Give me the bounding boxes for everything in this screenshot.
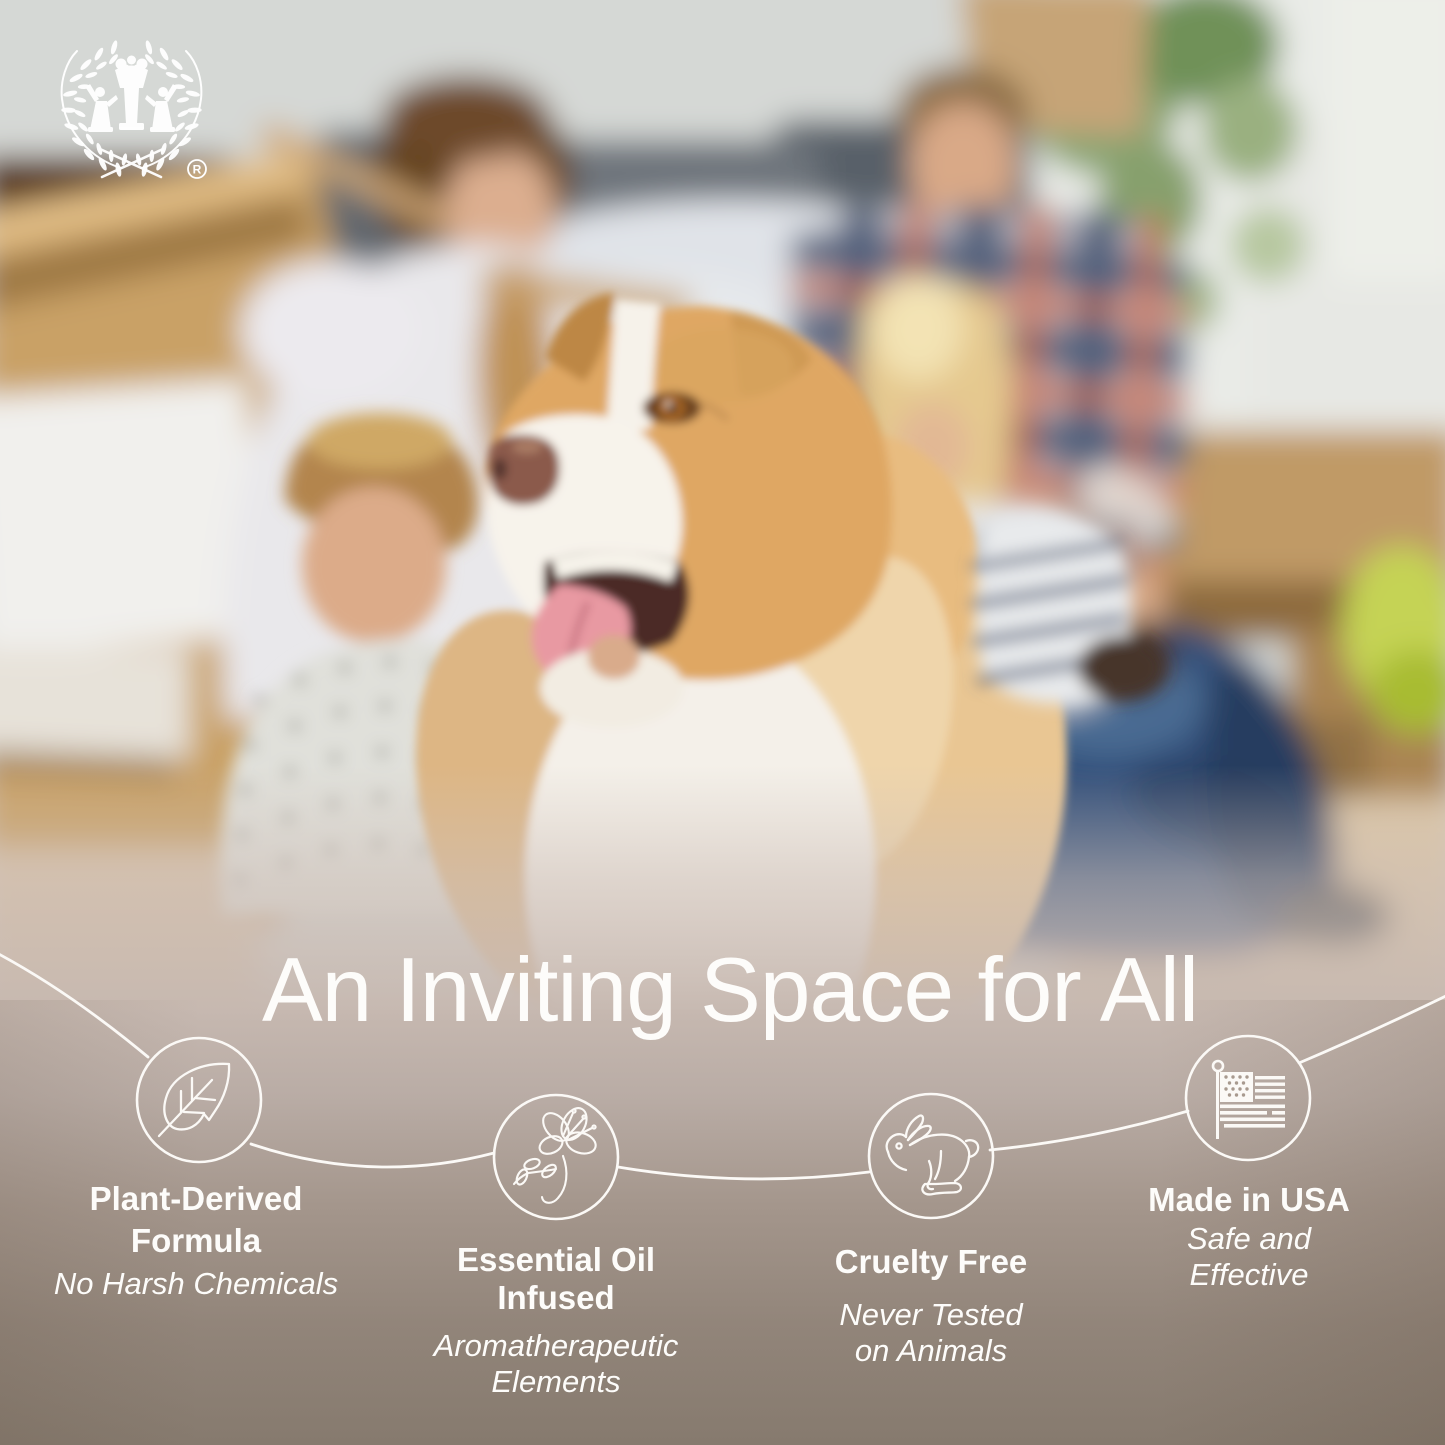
svg-text:Never Tested: Never Tested [839,1297,1024,1332]
svg-text:Aromatherapeutic: Aromatherapeutic [432,1328,679,1363]
svg-text:Infused: Infused [497,1279,614,1316]
svg-text:Effective: Effective [1190,1257,1309,1292]
svg-text:Made in USA: Made in USA [1148,1181,1350,1218]
svg-text:Cruelty Free: Cruelty Free [835,1243,1028,1280]
svg-text:No Harsh Chemicals: No Harsh Chemicals [54,1266,338,1301]
svg-text:Elements: Elements [491,1364,620,1399]
svg-text:R: R [193,163,202,177]
svg-text:Plant-Derived: Plant-Derived [90,1180,303,1217]
svg-text:An Inviting Space for All: An Inviting Space for All [262,940,1198,1041]
svg-text:on Animals: on Animals [855,1333,1007,1368]
svg-text:Essential Oil: Essential Oil [457,1241,655,1278]
svg-text:Safe and: Safe and [1187,1221,1313,1256]
svg-text:Formula: Formula [131,1222,262,1259]
